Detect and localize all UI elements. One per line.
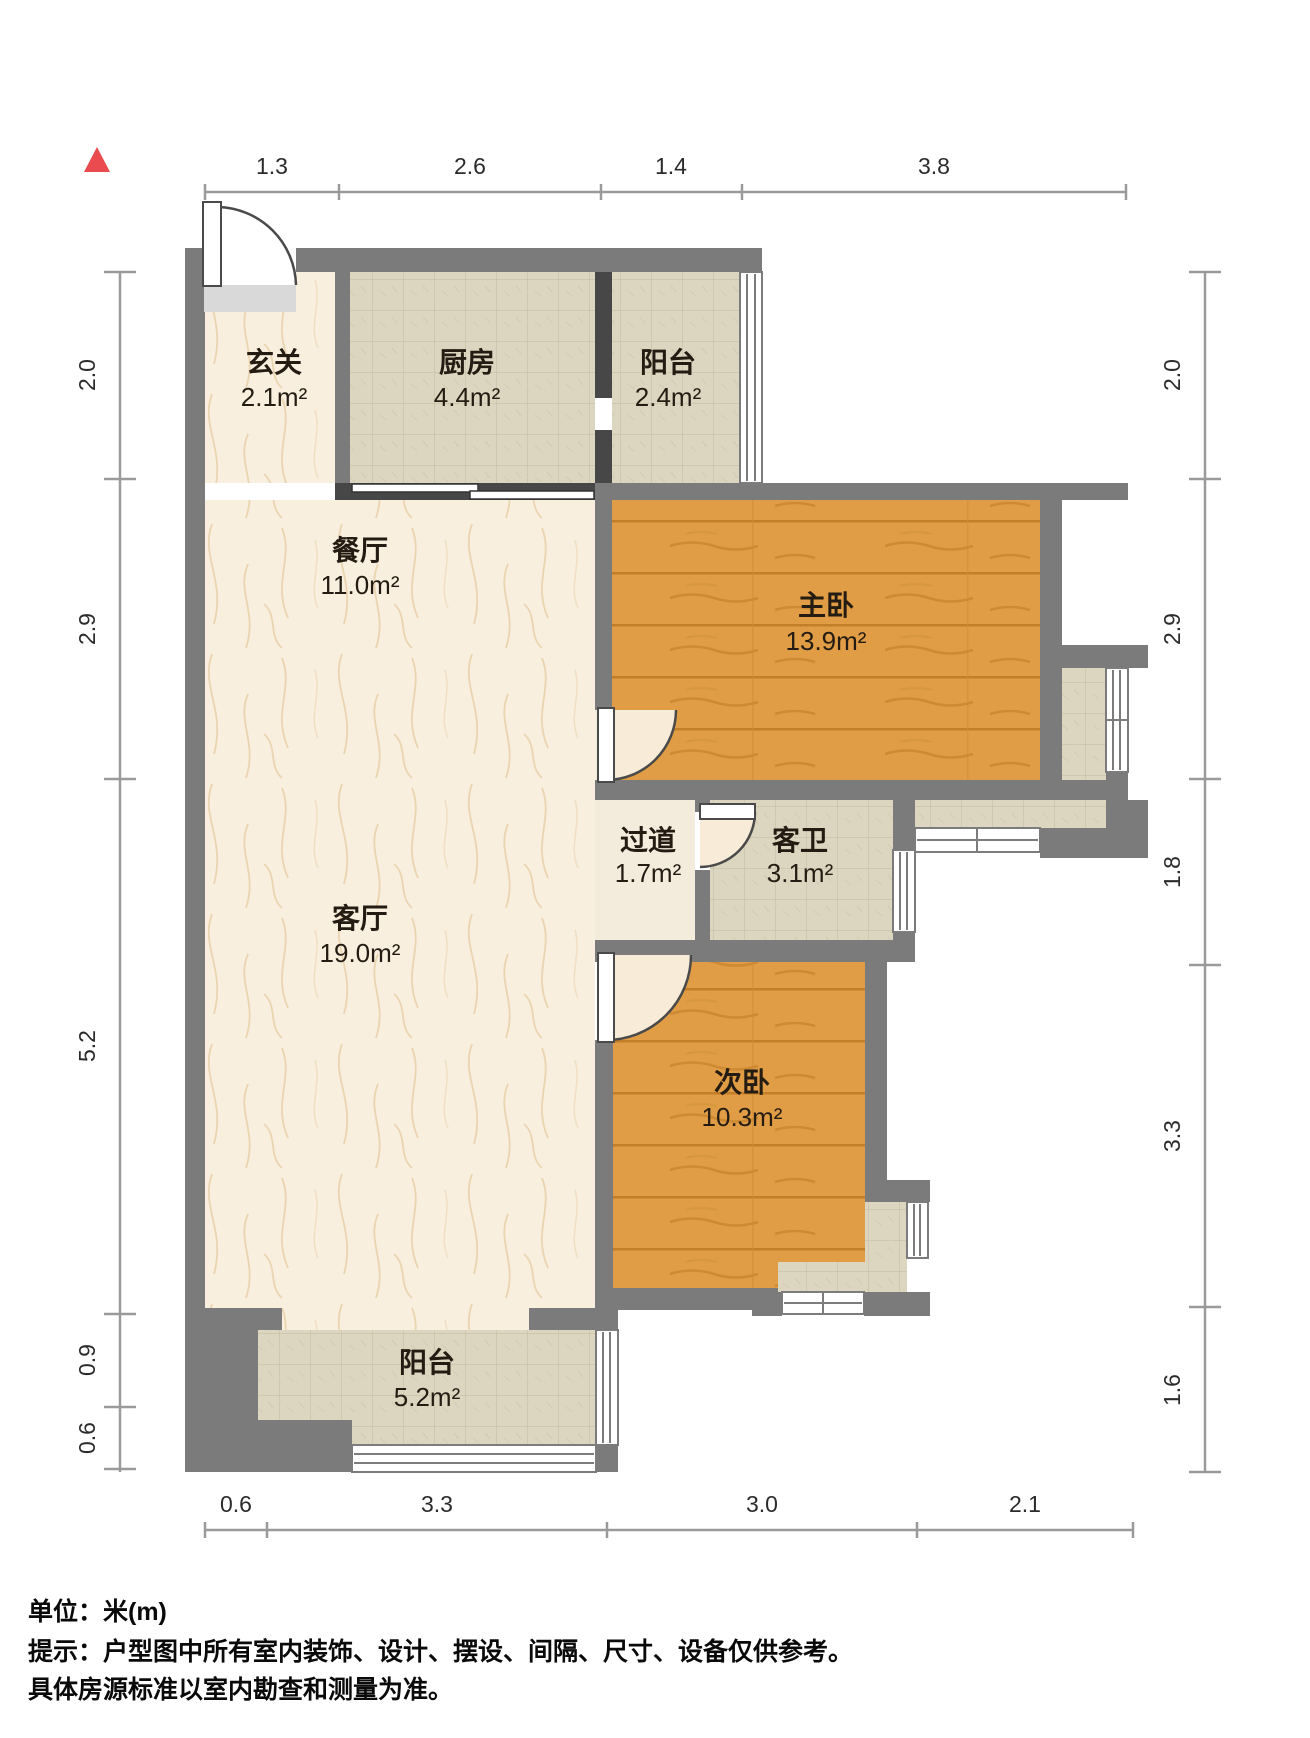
room-area-master: 13.9m² bbox=[786, 626, 867, 656]
wall-master-bottom bbox=[595, 780, 1106, 800]
wall-top-left-stub bbox=[185, 248, 204, 272]
dimension-right: 2.0 2.9 1.8 3.3 1.6 bbox=[1159, 272, 1221, 1472]
room-area-dining: 11.0m² bbox=[321, 570, 400, 600]
floor-plan: 玄关 2.1m² 厨房 4.4m² 阳台 2.4m² 餐厅 11.0m² 主卧 … bbox=[0, 0, 1310, 1738]
wall-balcony-step bbox=[258, 1420, 352, 1472]
room-area-entry: 2.1m² bbox=[241, 382, 308, 412]
entry-door-leaf bbox=[203, 202, 221, 286]
footer-tip-line: 提示：户型图中所有室内装饰、设计、摆设、间隔、尺寸、设备仅供参考。 bbox=[28, 1637, 853, 1666]
window-bottom-balcony-right bbox=[596, 1330, 618, 1445]
dim-label: 2.0 bbox=[74, 359, 100, 391]
dimension-top: 1.3 2.6 1.4 3.8 bbox=[205, 153, 1126, 200]
wall-left bbox=[185, 248, 205, 1330]
room-area-hallway: 1.7m² bbox=[615, 858, 682, 888]
dim-label: 3.3 bbox=[1159, 1120, 1185, 1152]
bay2-tile-vertical bbox=[865, 1202, 907, 1262]
room-name-entry: 玄关 bbox=[246, 346, 302, 378]
room-area-bathroom: 3.1m² bbox=[767, 858, 834, 888]
room-name-living: 客厅 bbox=[332, 902, 388, 934]
dimension-left: 2.0 2.9 5.2 0.9 0.6 bbox=[74, 272, 136, 1472]
wall-second-bottom bbox=[595, 1288, 778, 1310]
wall-bath-left-lower bbox=[695, 870, 710, 940]
window-top-balcony bbox=[740, 272, 762, 483]
master-door-leaf bbox=[598, 708, 614, 782]
wall-master-left bbox=[595, 500, 612, 710]
second-door-leaf bbox=[598, 953, 614, 1042]
dim-label: 3.0 bbox=[746, 1491, 778, 1517]
wall-living-bottom-right bbox=[529, 1308, 618, 1330]
wall-band-master-top bbox=[595, 483, 1128, 500]
room-name-kitchen: 厨房 bbox=[439, 346, 495, 378]
room-area-bottom-balcony: 5.2m² bbox=[394, 1382, 461, 1412]
dim-label: 2.6 bbox=[454, 153, 486, 179]
dim-label: 3.3 bbox=[421, 1491, 453, 1517]
kitchen-balcony-pass bbox=[595, 398, 612, 430]
footer-tip-line2: 具体房源标准以室内勘查和测量为准。 bbox=[28, 1675, 453, 1704]
room-name-top-balcony: 阳台 bbox=[640, 346, 696, 378]
entry-door bbox=[203, 202, 296, 286]
dim-label: 5.2 bbox=[74, 1030, 100, 1062]
window-bay1-right bbox=[1106, 668, 1128, 772]
bay1-tile-vertical bbox=[1062, 668, 1106, 780]
window-bathroom bbox=[893, 850, 915, 932]
wall-entry-kitchen bbox=[335, 272, 350, 483]
sliding-door-panel bbox=[470, 491, 594, 499]
room-name-second: 次卧 bbox=[714, 1067, 770, 1098]
dim-label: 2.9 bbox=[1159, 613, 1185, 645]
dim-label: 1.6 bbox=[1159, 1374, 1185, 1406]
wall-kitchen-balcony bbox=[595, 272, 612, 483]
north-arrow-icon bbox=[84, 147, 110, 172]
wall-balcony-corner bbox=[596, 1445, 618, 1472]
living-dining-floor bbox=[205, 500, 595, 1308]
footer-unit-line: 单位：米(m) bbox=[28, 1597, 167, 1626]
wall-bay1-bottom bbox=[1040, 828, 1106, 858]
room-area-living: 19.0m² bbox=[320, 938, 401, 968]
wall-bay2-step bbox=[865, 1180, 930, 1202]
wall-bay1-cap bbox=[1106, 772, 1128, 800]
wall-bay2-bottom-right bbox=[864, 1292, 930, 1316]
window-bay2-bottom bbox=[782, 1292, 864, 1314]
wall-top bbox=[296, 248, 762, 272]
balcony-passage-floor bbox=[282, 1308, 529, 1330]
dim-label: 2.1 bbox=[1009, 1491, 1041, 1517]
room-name-dining: 餐厅 bbox=[332, 535, 388, 566]
room-area-kitchen: 4.4m² bbox=[434, 382, 501, 412]
dim-label: 2.9 bbox=[74, 613, 100, 645]
room-name-bottom-balcony: 阳台 bbox=[399, 1346, 455, 1378]
dim-label: 1.3 bbox=[256, 153, 288, 179]
wall-second-right bbox=[865, 962, 887, 1180]
room-name-hallway: 过道 bbox=[620, 824, 676, 856]
wall-second-left bbox=[595, 1040, 613, 1288]
room-area-second: 10.3m² bbox=[702, 1102, 783, 1132]
dim-label: 0.9 bbox=[74, 1344, 100, 1376]
wall-bay1-step bbox=[1062, 645, 1148, 668]
sliding-door-panel bbox=[352, 484, 478, 492]
bay2-tile-horizontal bbox=[778, 1262, 907, 1292]
bay1-tile-horizontal bbox=[888, 800, 1106, 828]
dim-label: 2.0 bbox=[1159, 359, 1185, 391]
wall-master-right bbox=[1040, 500, 1062, 780]
dim-label: 3.8 bbox=[918, 153, 950, 179]
room-area-top-balcony: 2.4m² bbox=[635, 382, 702, 412]
window-bay2-right bbox=[907, 1202, 928, 1258]
footer: 单位：米(m) 提示：户型图中所有室内装饰、设计、摆设、间隔、尺寸、设备仅供参考… bbox=[28, 1597, 853, 1704]
wall-bay1-right-block bbox=[1106, 800, 1148, 858]
dim-label: 0.6 bbox=[74, 1422, 100, 1454]
dim-label: 1.8 bbox=[1159, 856, 1185, 888]
bathroom-door-leaf bbox=[700, 804, 755, 819]
dim-label: 0.6 bbox=[220, 1491, 252, 1517]
wall-bay2-bottom-left bbox=[752, 1292, 782, 1316]
window-bottom-balcony bbox=[352, 1445, 596, 1472]
window-bay1-bottom bbox=[915, 828, 1040, 852]
dimension-bottom: 0.6 3.3 3.0 2.1 bbox=[205, 1491, 1133, 1538]
room-name-master: 主卧 bbox=[798, 590, 854, 621]
dim-label: 1.4 bbox=[655, 153, 687, 179]
wall-balcony-left-block bbox=[185, 1308, 258, 1472]
room-name-bathroom: 客卫 bbox=[772, 824, 828, 856]
